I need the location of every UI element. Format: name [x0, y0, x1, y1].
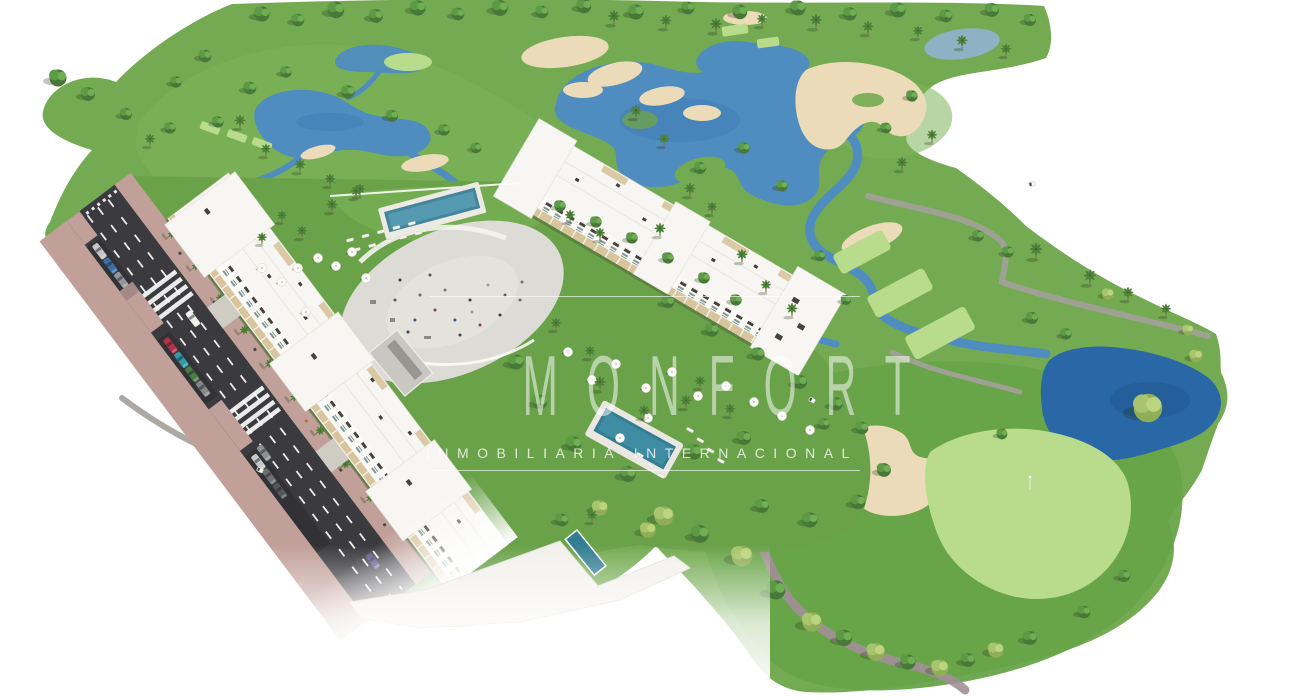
aerial-render-golf-resort: MONFORT INMOBILIARIA INTERNACIONAL: [0, 0, 1290, 698]
bottom-white-fade: [260, 545, 770, 698]
scene-canvas: [0, 0, 1290, 698]
